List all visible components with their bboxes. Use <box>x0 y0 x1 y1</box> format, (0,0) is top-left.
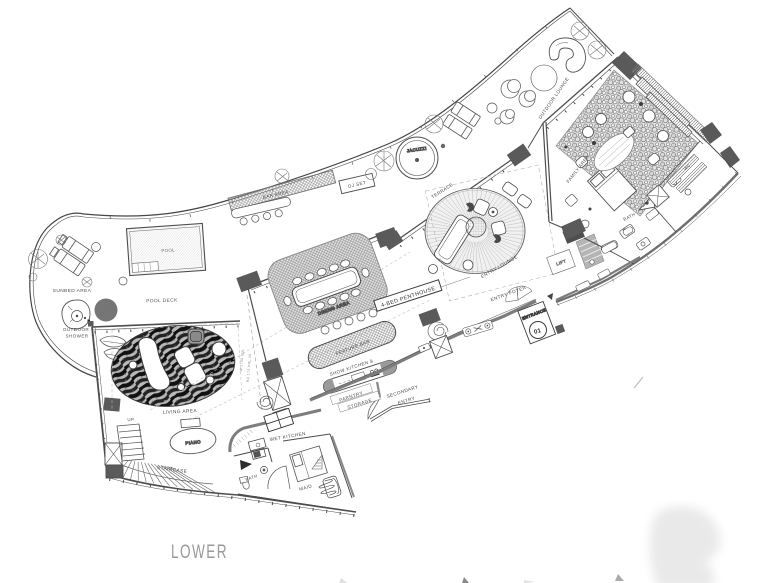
svg-text:OUTDOOR: OUTDOOR <box>63 327 90 332</box>
svg-text:SUNBED AREA: SUNBED AREA <box>53 288 92 294</box>
svg-text:ENTRY: ENTRY <box>397 395 416 405</box>
svg-text:POOL DECK: POOL DECK <box>146 297 178 304</box>
svg-text:BATH: BATH <box>245 473 258 482</box>
svg-text:LIVING AREA: LIVING AREA <box>163 408 198 416</box>
svg-text:SHOWER: SHOWER <box>65 334 88 339</box>
svg-text:W.1700 SQL: W.1700 SQL <box>239 348 245 371</box>
svg-text:BATH: BATH <box>622 211 636 222</box>
svg-text:UP: UP <box>127 417 134 422</box>
svg-text:MAID: MAID <box>299 483 313 491</box>
svg-text:RD 170 PRL 30: RD 170 PRL 30 <box>246 353 252 382</box>
svg-text:LOWER: LOWER <box>171 542 228 563</box>
svg-text:POOL: POOL <box>161 247 175 253</box>
svg-text:ENTRY FOYER: ENTRY FOYER <box>490 285 527 303</box>
